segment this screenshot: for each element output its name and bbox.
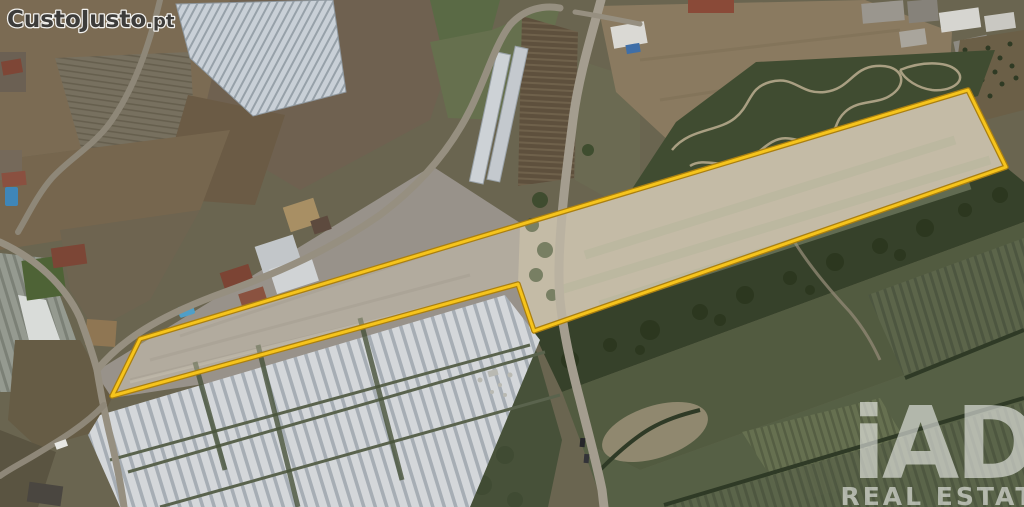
red-roof-house: [688, 0, 734, 13]
car: [580, 438, 586, 447]
satellite-map: CustoJusto.pt iAD REAL ESTATE: [0, 0, 1024, 507]
satellite-listing-image: CustoJusto.pt iAD REAL ESTATE: [0, 0, 1024, 507]
iad-logo: iAD REAL ESTATE: [840, 385, 1024, 507]
watermark-tld: .pt: [146, 11, 175, 32]
swimming-pool: [5, 187, 18, 206]
red-roof-house: [1, 171, 26, 187]
car: [584, 454, 590, 463]
iad-logo-tagline: REAL ESTATE: [840, 482, 1024, 507]
watermark-brand: CustoJusto: [7, 7, 146, 33]
watermark-custojusto: CustoJusto.pt: [7, 7, 175, 33]
